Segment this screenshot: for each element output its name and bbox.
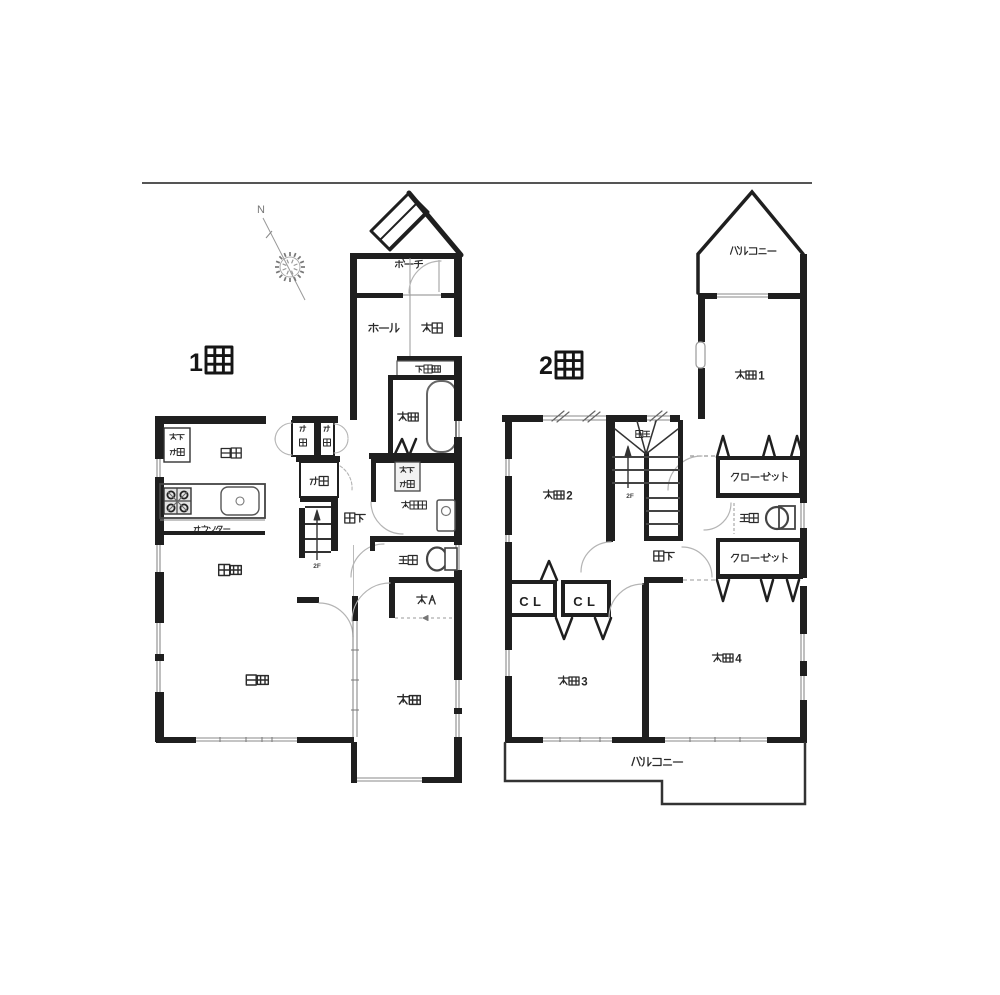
svg-text:L: L (587, 594, 595, 609)
svg-text:2F: 2F (626, 493, 634, 500)
svg-text:2: 2 (539, 352, 553, 380)
svg-text:C: C (573, 594, 583, 609)
svg-text:1: 1 (189, 349, 203, 377)
svg-text:1: 1 (758, 371, 765, 383)
svg-text:2F: 2F (313, 563, 321, 570)
svg-text:4: 4 (735, 654, 742, 666)
svg-text:2: 2 (566, 491, 572, 503)
svg-text:C: C (519, 594, 529, 609)
svg-text:N: N (257, 204, 265, 216)
svg-text:3: 3 (581, 677, 587, 689)
svg-text:L: L (533, 594, 541, 609)
